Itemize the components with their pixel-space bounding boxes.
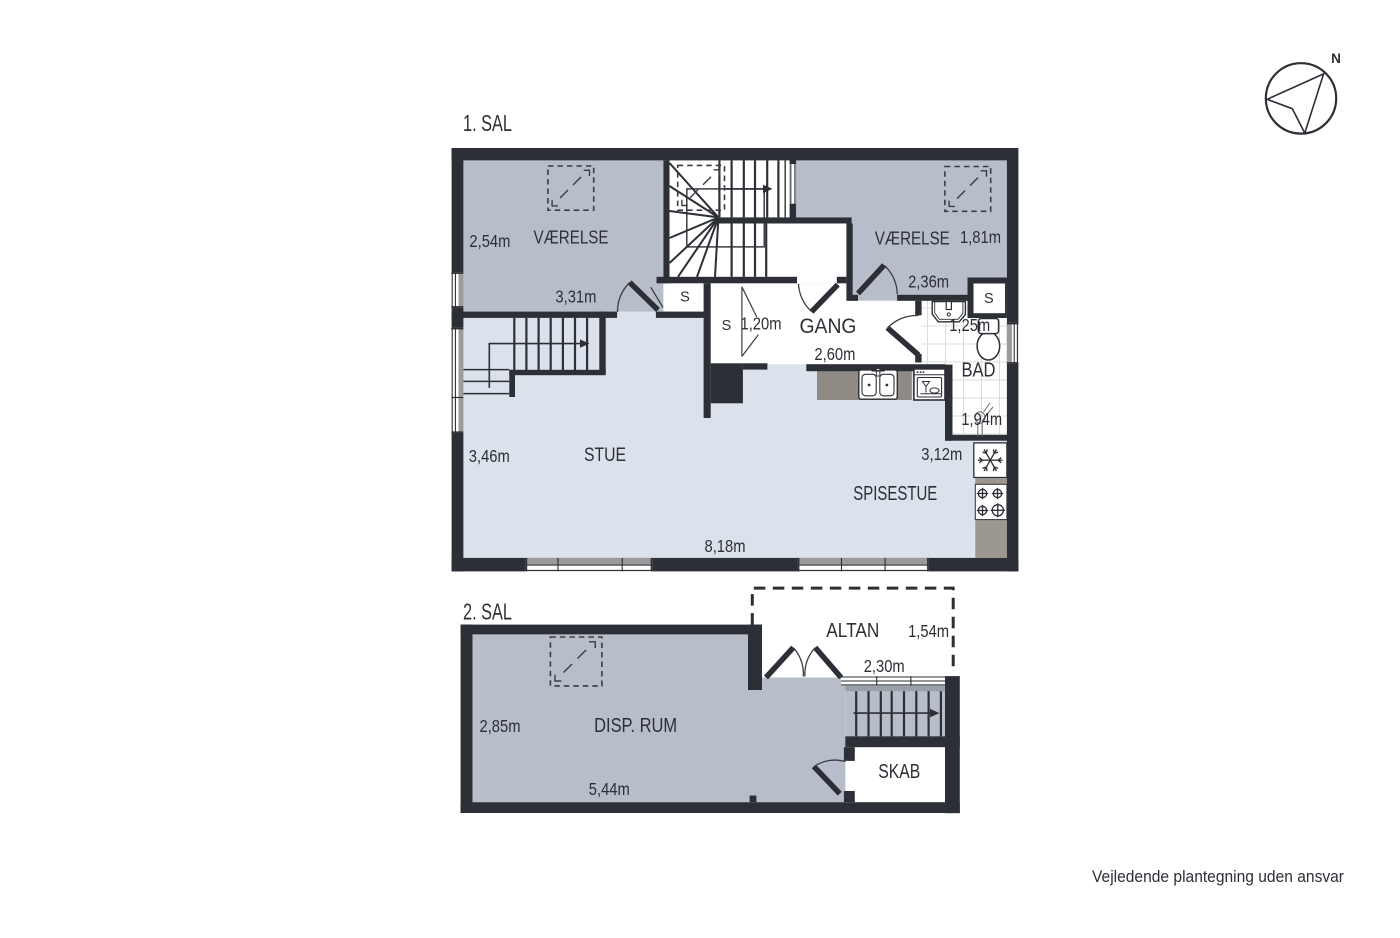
svg-text:1,81m: 1,81m (960, 227, 1001, 247)
svg-text:2,54m: 2,54m (469, 231, 510, 251)
svg-text:STUE: STUE (584, 444, 626, 466)
svg-text:2,60m: 2,60m (814, 344, 855, 364)
svg-text:3,12m: 3,12m (921, 444, 962, 464)
svg-text:8,18m: 8,18m (705, 536, 746, 556)
svg-text:ALTAN: ALTAN (826, 620, 879, 642)
svg-text:3,46m: 3,46m (469, 446, 510, 466)
svg-text:S: S (984, 291, 994, 307)
svg-text:3,31m: 3,31m (555, 287, 596, 307)
svg-text:1,94m: 1,94m (961, 409, 1002, 429)
svg-text:N: N (1331, 51, 1341, 66)
svg-text:2,85m: 2,85m (480, 716, 521, 736)
svg-text:SKAB: SKAB (878, 761, 920, 783)
svg-text:1. SAL: 1. SAL (463, 110, 512, 136)
svg-text:1,54m: 1,54m (908, 621, 949, 641)
svg-text:1,25m: 1,25m (949, 315, 990, 335)
svg-text:Vejledende plantegning uden an: Vejledende plantegning uden ansvar (1092, 867, 1344, 886)
svg-text:S: S (680, 290, 690, 306)
svg-text:BAD: BAD (962, 359, 996, 381)
svg-text:2. SAL: 2. SAL (463, 599, 512, 625)
svg-text:SPISESTUE: SPISESTUE (853, 483, 937, 505)
svg-text:DISP. RUM: DISP. RUM (594, 715, 677, 737)
svg-text:VÆRELSE: VÆRELSE (534, 226, 609, 247)
svg-text:2,36m: 2,36m (908, 272, 949, 292)
svg-text:1,20m: 1,20m (741, 314, 782, 334)
svg-text:2,30m: 2,30m (864, 656, 905, 676)
svg-text:VÆRELSE: VÆRELSE (875, 228, 950, 249)
svg-text:GANG: GANG (800, 314, 857, 338)
svg-text:5,44m: 5,44m (589, 779, 630, 799)
svg-text:S: S (722, 318, 732, 334)
